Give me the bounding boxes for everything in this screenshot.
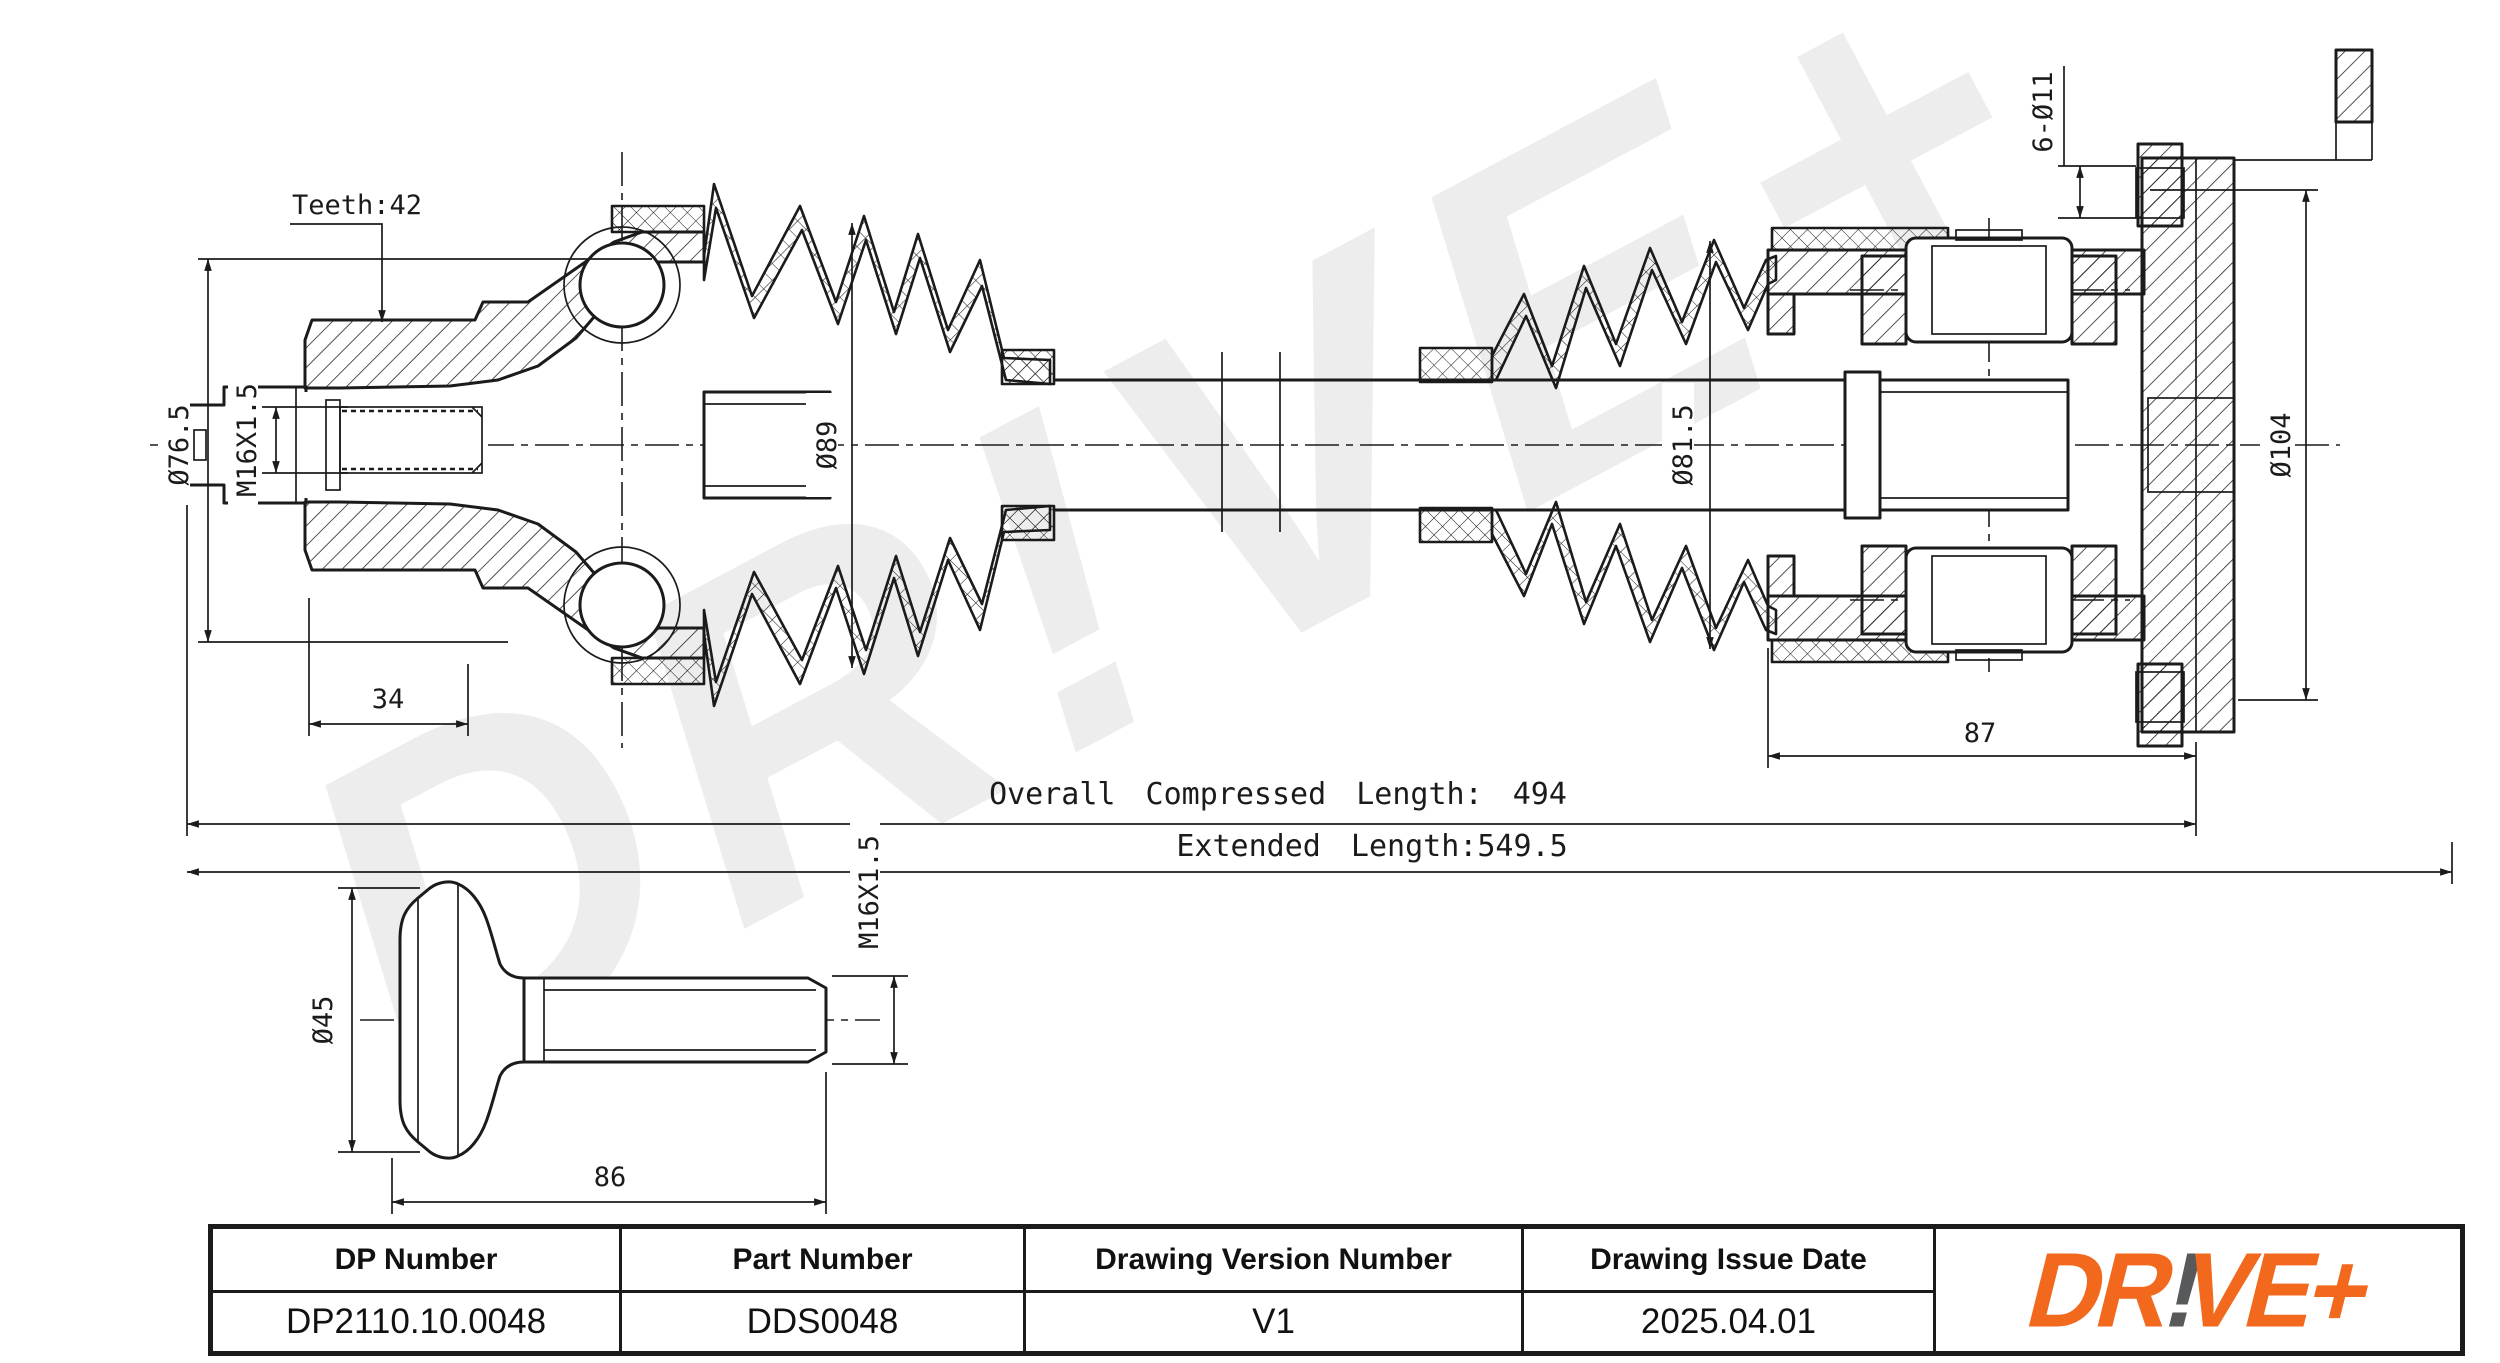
- value-dp-number: DP2110.10.0048: [213, 1293, 622, 1351]
- dia-76-5-label: Ø76.5: [164, 404, 195, 485]
- title-block: DP Number Part Number Drawing Version Nu…: [208, 1224, 2465, 1356]
- header-drawing-version: Drawing Version Number: [1026, 1229, 1524, 1293]
- value-part-number: DDS0048: [622, 1293, 1026, 1351]
- thread-left-label: M16X1.5: [232, 383, 263, 497]
- drive-plus-logo: DR!VE+: [2015, 1229, 2380, 1351]
- dia-104-label: Ø104: [2266, 412, 2297, 477]
- bolt-length-label: 86: [594, 1162, 627, 1193]
- dim-87-label: 87: [1964, 718, 1997, 749]
- extended-length-label: Extended Length:549.5: [1176, 829, 1567, 864]
- technical-drawing-canvas: DR!VE+: [0, 0, 2500, 1363]
- value-drawing-version: V1: [1026, 1293, 1524, 1351]
- header-issue-date: Drawing Issue Date: [1524, 1229, 1936, 1293]
- header-dp-number: DP Number: [213, 1229, 622, 1293]
- dia-89-label: Ø89: [812, 421, 843, 470]
- dim-34-label: 34: [372, 684, 405, 715]
- dia-81-5-label: Ø81.5: [1668, 404, 1699, 485]
- header-part-number: Part Number: [622, 1229, 1026, 1293]
- brand-logo: DR!VE+: [1936, 1229, 2460, 1351]
- bolt-holes-label: 6-Ø11: [2028, 71, 2059, 152]
- dim-87: 87: [1768, 648, 2196, 836]
- value-issue-date: 2025.04.01: [1524, 1293, 1936, 1351]
- bolt-thread-label: M16X1.5: [854, 835, 885, 949]
- logo-ve-plus: VE+: [2170, 1230, 2380, 1349]
- teeth-label: Teeth:42: [292, 190, 422, 221]
- drawing-sheet: DR!VE+: [0, 0, 2500, 1363]
- teeth-annotation: Teeth:42: [290, 190, 422, 322]
- bolt-dia-label: Ø45: [308, 996, 339, 1045]
- overall-length-label: Overall Compressed Length: 494: [989, 777, 1567, 812]
